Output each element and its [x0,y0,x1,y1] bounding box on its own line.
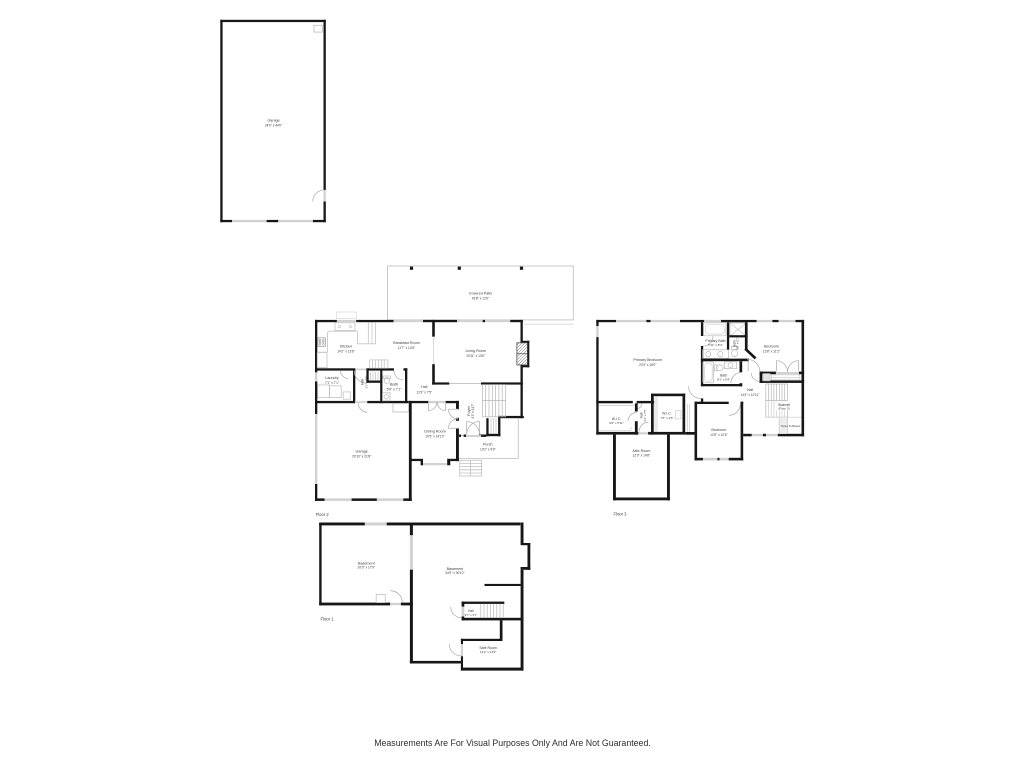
svg-text:Hall: Hall [747,388,754,392]
svg-text:13'8" x 11'2": 13'8" x 11'2" [763,350,780,354]
svg-text:12'0" x 14'8": 12'0" x 14'8" [633,453,650,457]
svg-text:3'1" x 7'5": 3'1" x 7'5" [643,409,647,422]
svg-text:Floor 3: Floor 3 [613,512,627,517]
svg-text:10'5" x 14'10": 10'5" x 14'10" [425,434,444,438]
svg-text:5'11" x 8'4": 5'11" x 8'4" [708,343,723,347]
svg-text:Garage: Garage [267,118,279,122]
svg-text:3'1" x 7'5": 3'1" x 7'5" [364,375,368,388]
svg-text:Laundry: Laundry [325,376,338,380]
svg-text:4'3" x 11'7": 4'3" x 11'7" [471,403,475,418]
svg-text:Open To Below: Open To Below [781,424,801,428]
svg-text:20'0" x 17'9": 20'0" x 17'9" [358,566,375,570]
svg-text:8'1" x 8'4": 8'1" x 8'4" [717,378,730,382]
svg-text:Kitchen: Kitchen [340,345,352,349]
svg-text:14'4" x 10'11": 14'4" x 10'11" [740,393,759,397]
svg-text:Bedroom: Bedroom [764,344,779,348]
svg-text:(Floor 3): (Floor 3) [778,407,789,411]
svg-text:14'2" x 14'9": 14'2" x 14'9" [480,650,496,654]
svg-text:Hall: Hall [421,385,428,389]
svg-text:23'3" x 18'0": 23'3" x 18'0" [639,363,656,367]
svg-text:19'11" x 13'6": 19'11" x 13'6" [466,354,485,358]
svg-text:24'0" x 44'0": 24'0" x 44'0" [265,123,282,127]
svg-text:Living Room: Living Room [465,349,486,353]
svg-text:9'6" x 5'11": 9'6" x 5'11" [609,421,624,425]
svg-text:Floor 2: Floor 2 [316,512,330,517]
svg-text:14'2" x 13'6": 14'2" x 13'6" [337,350,354,354]
svg-text:Floor 1: Floor 1 [320,616,334,621]
svg-text:12'5" x 12'6": 12'5" x 12'6" [710,433,727,437]
svg-text:11'9" x 7'5": 11'9" x 7'5" [417,390,432,394]
svg-text:Primary Bedroom: Primary Bedroom [633,358,662,362]
svg-text:7'5" x 4'5": 7'5" x 4'5" [660,416,673,420]
svg-text:Garage: Garage [356,449,368,453]
svg-text:Bath: Bath [390,382,398,387]
svg-text:2'8" x 6'1": 2'8" x 6'1" [736,337,740,349]
svg-text:13'2" x 9'9": 13'2" x 9'9" [480,448,496,452]
svg-text:Bedroom: Bedroom [711,428,726,432]
svg-text:34'9" x 30'10": 34'9" x 30'10" [445,571,464,575]
svg-text:7'1" x 7'1": 7'1" x 7'1" [325,381,339,385]
svg-text:11'7" x 14'6": 11'7" x 14'6" [398,346,415,350]
svg-text:5'9" x 7'1": 5'9" x 7'1" [387,388,403,392]
svg-text:Measurements Are For Visual Pu: Measurements Are For Visual Purposes Onl… [374,738,651,748]
svg-text:Breakfast Room: Breakfast Room [393,341,419,345]
svg-text:Porch: Porch [483,443,493,447]
svg-text:9'7" x 3'7": 9'7" x 3'7" [465,613,478,617]
svg-text:Dining Room: Dining Room [424,429,445,433]
svg-text:Covered Patio: Covered Patio [469,292,492,296]
svg-text:43'8" x 12'0": 43'8" x 12'0" [472,297,489,301]
svg-text:20'10" x 21'8": 20'10" x 21'8" [352,455,371,459]
